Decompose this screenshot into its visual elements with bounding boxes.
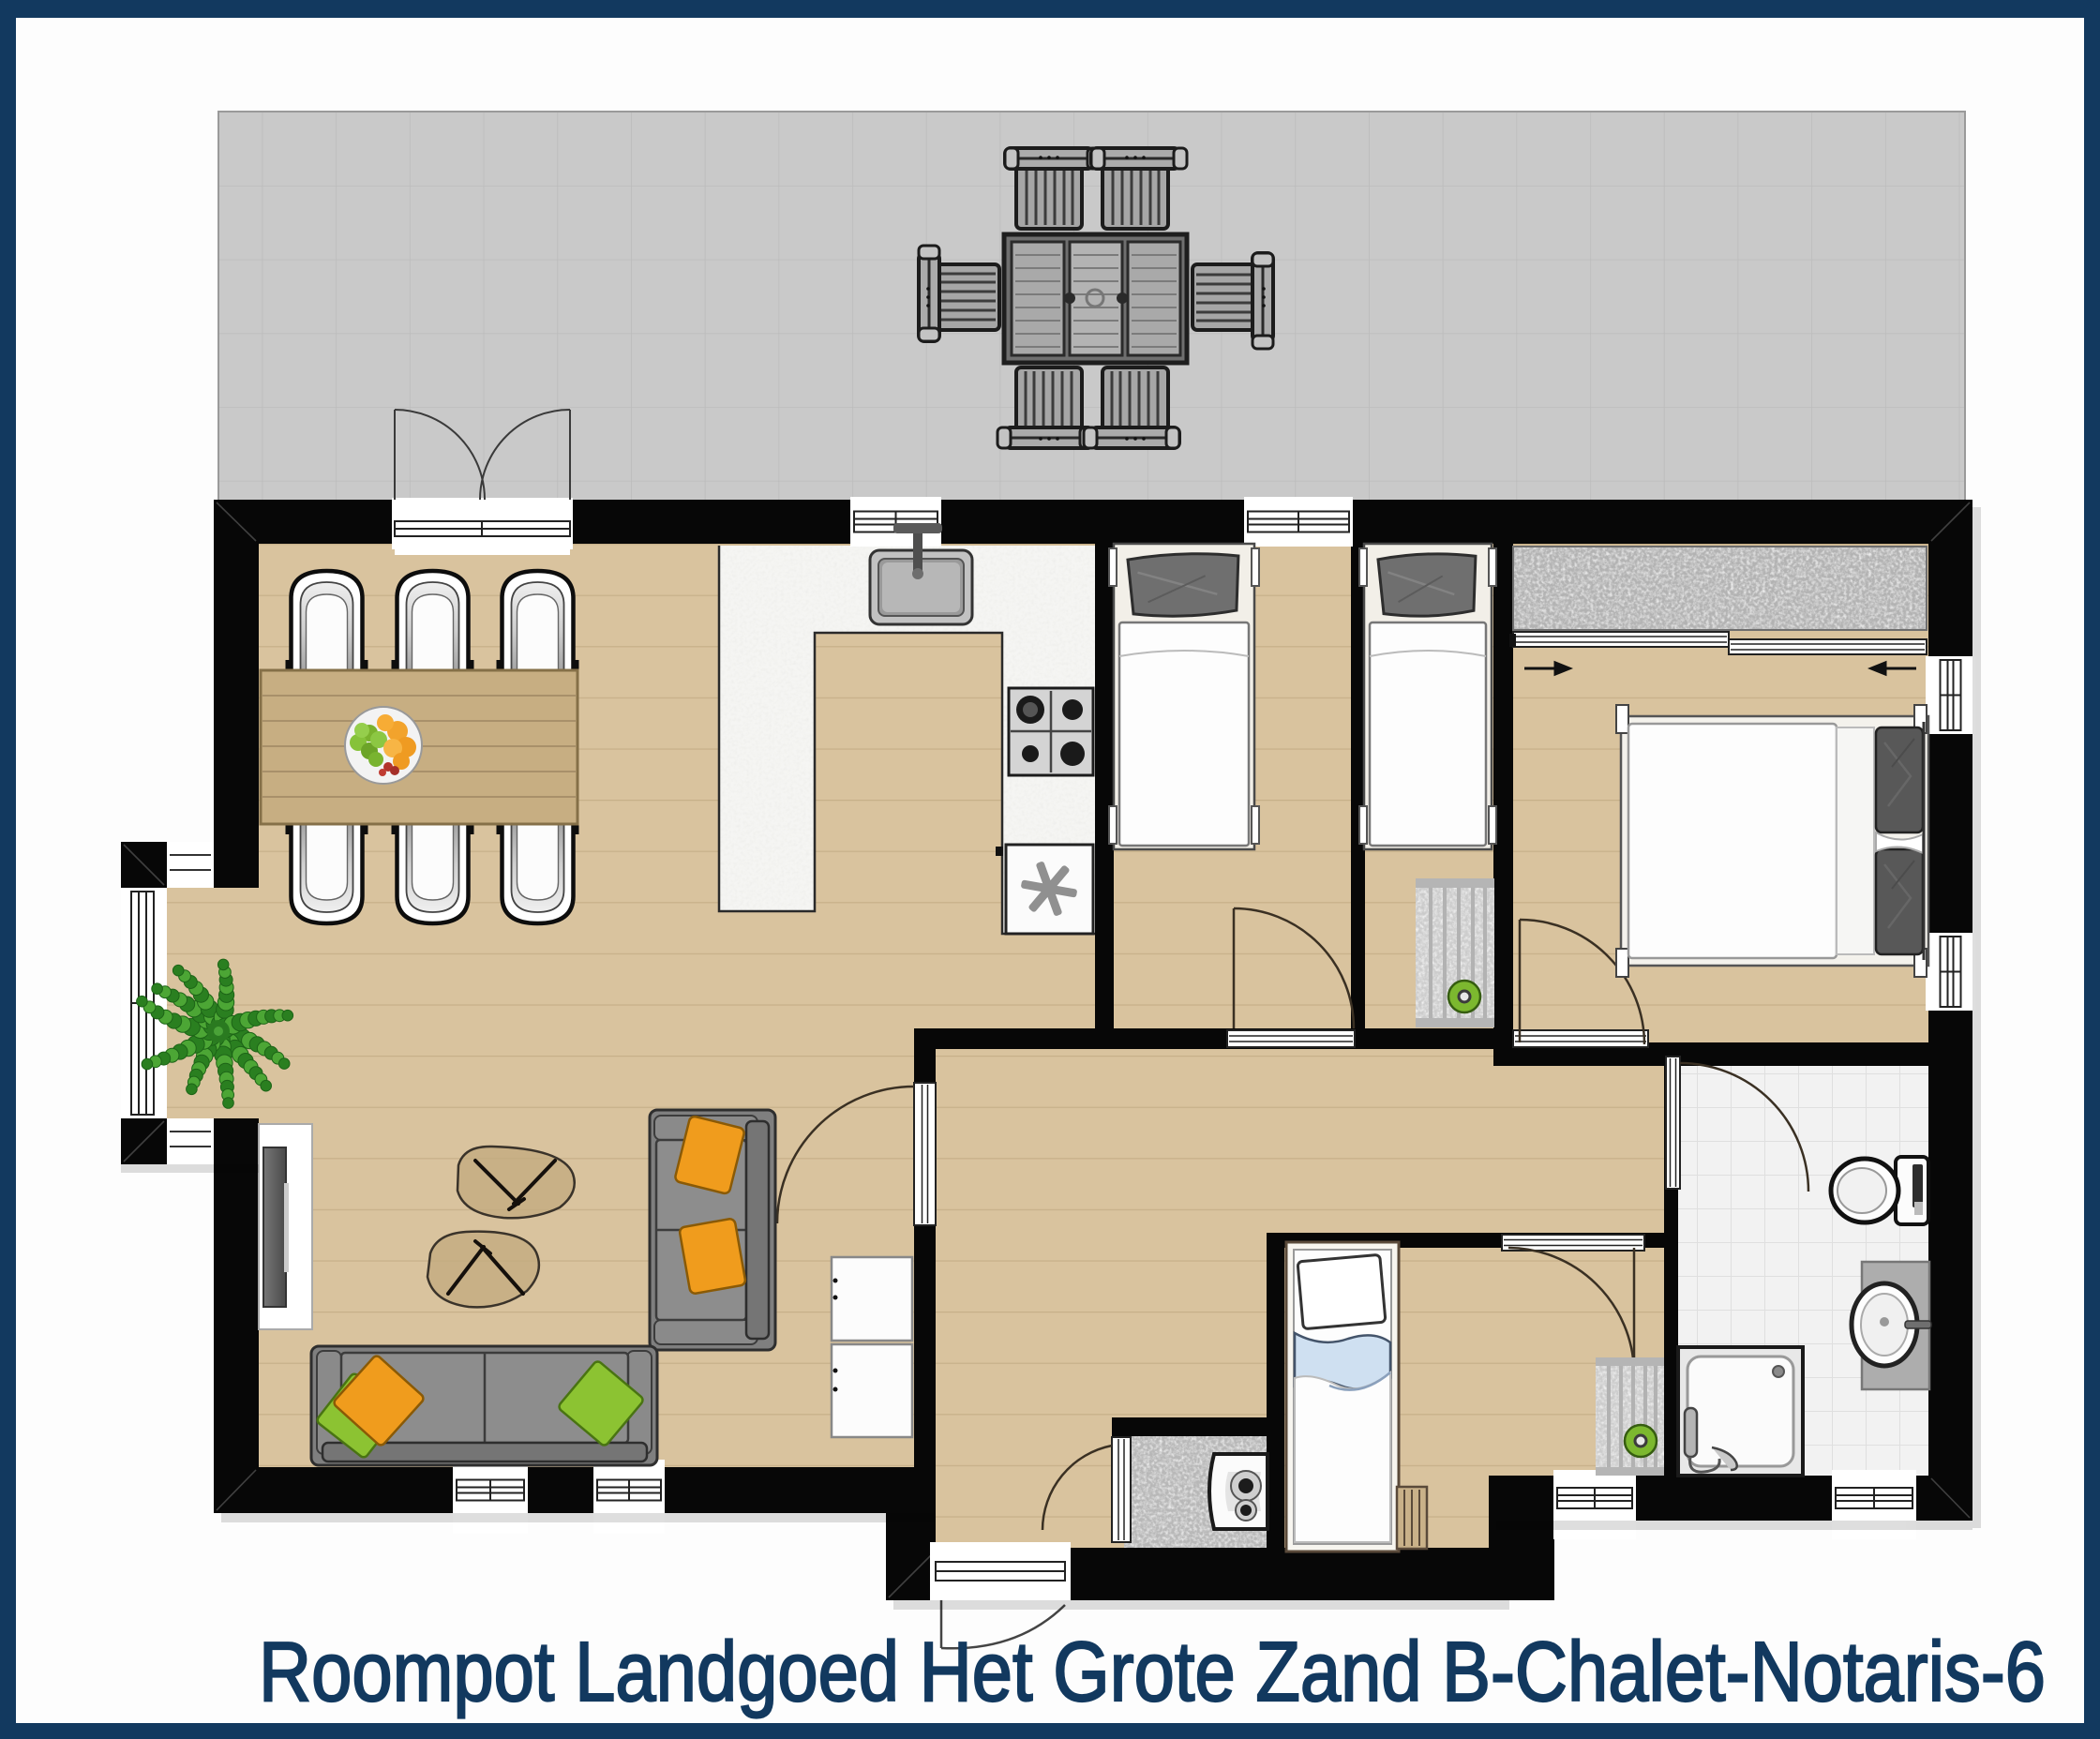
svg-text:Roompot Landgoed Het Grote Zan: Roompot Landgoed Het Grote Zand B-Chalet… xyxy=(259,1626,2046,1719)
